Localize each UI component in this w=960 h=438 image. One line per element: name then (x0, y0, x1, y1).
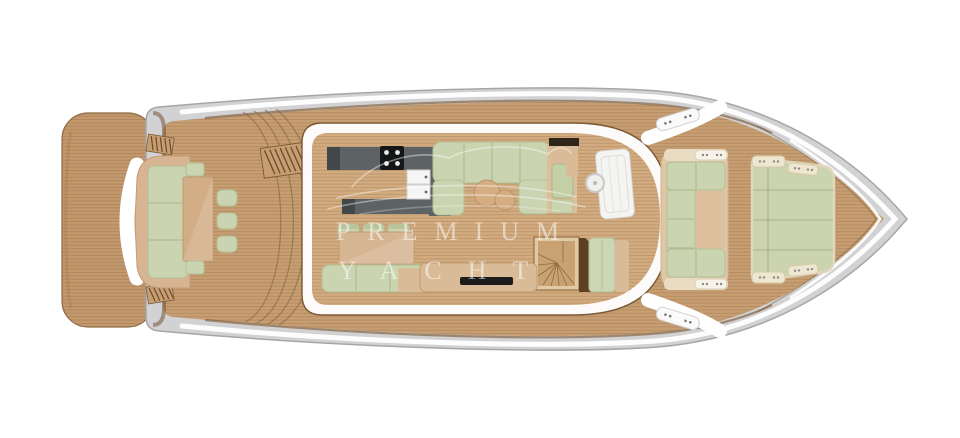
door-frame (615, 240, 629, 292)
aft-seat-bottom (186, 261, 204, 274)
bow-bench-hinge-bottom (695, 279, 727, 289)
sun-pad-hinge-tl (752, 156, 785, 167)
aft-stool-2 (217, 213, 237, 229)
steering-wheel-hub (593, 181, 597, 185)
aft-seat-top (186, 163, 204, 176)
bow-bench-backrest (696, 191, 725, 248)
sink-knob (425, 176, 428, 179)
yacht-deck-plan: PREMIUM YACHT (0, 0, 960, 438)
sink-knob (425, 191, 428, 194)
bow-sun-pad (752, 156, 834, 283)
galley-counter-cap (327, 147, 340, 170)
helm-dash-ledge (566, 163, 578, 177)
deck-plan-illustration (0, 0, 960, 438)
galley-counter-lower (342, 199, 429, 214)
sun-pad-hinge-bl (752, 272, 785, 283)
aft-stool-3 (217, 236, 237, 252)
helm-dash-bar (549, 138, 579, 146)
bow-bench-hinge-top (695, 150, 727, 160)
aft-stool-1 (217, 190, 237, 206)
port-boarding-steps (146, 134, 174, 155)
sideboard-mat (460, 277, 513, 285)
aft-sofa-cushions (148, 166, 188, 278)
bow-bench (661, 149, 728, 290)
spiral-staircase (534, 237, 579, 290)
galley-counter-lower-cap (342, 199, 355, 214)
